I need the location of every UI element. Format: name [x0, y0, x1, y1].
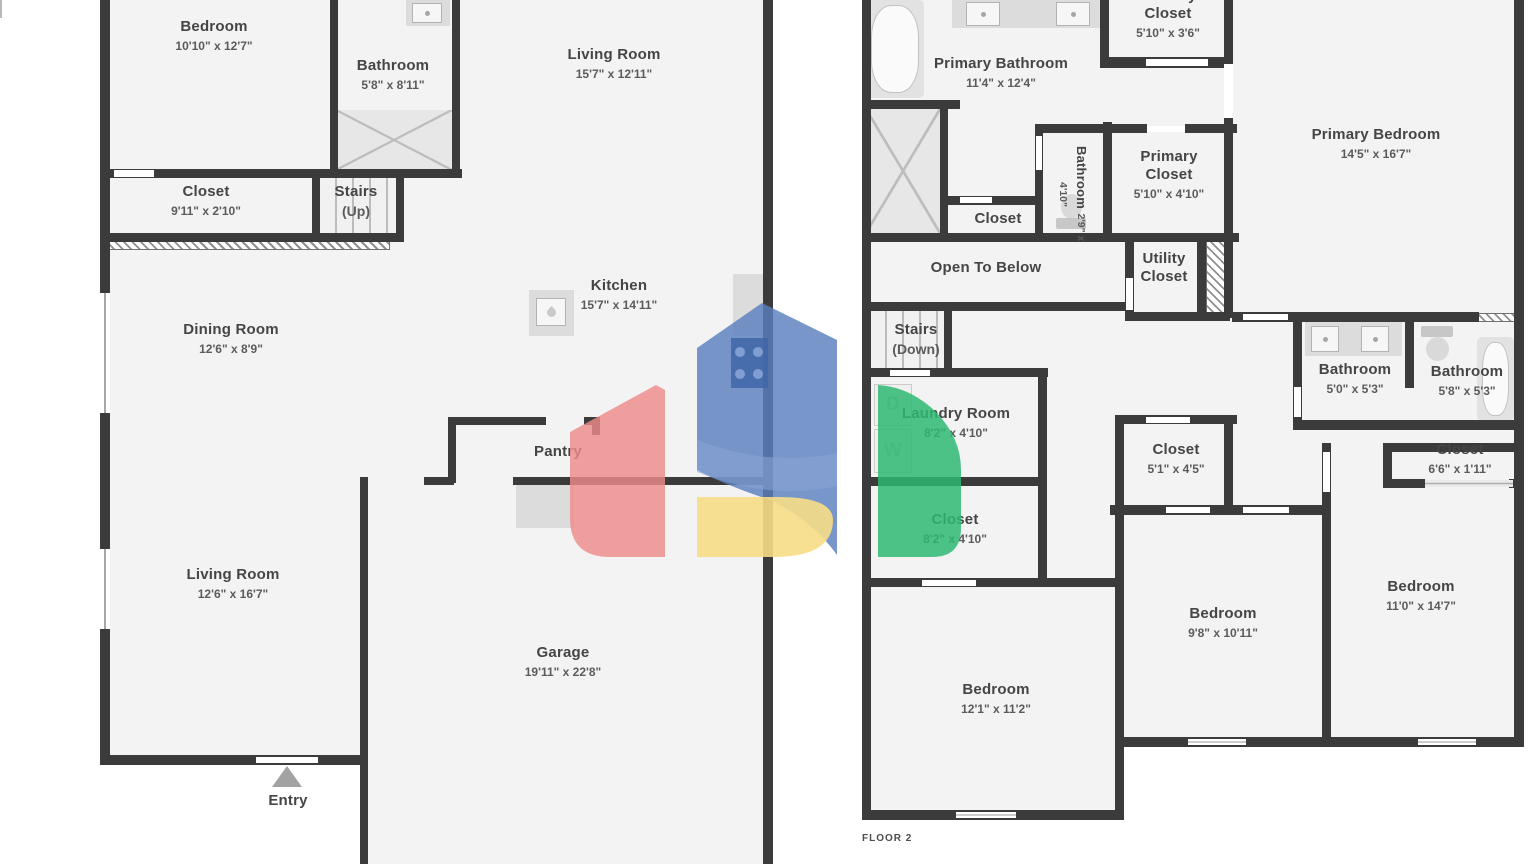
wall-segment — [1224, 118, 1233, 318]
window — [956, 812, 1016, 818]
room-dims: 12'6" x 16'7" — [186, 587, 279, 602]
room-label-entry: Entry — [268, 792, 307, 810]
sink-icon — [1311, 326, 1339, 352]
room-label-stairs-up: Stairs (Up) — [335, 183, 378, 219]
wall-segment — [1293, 420, 1523, 430]
room-name: Bedroom — [1386, 578, 1456, 596]
room-dims: (Up) — [335, 204, 378, 219]
stove-icon — [0, 0, 2, 18]
room-label-closet: Closet 9'11" x 2'10" — [171, 183, 241, 219]
room-label-bathroom-left: Bathroom 5'0" x 5'3" — [1319, 361, 1391, 397]
sliding-door — [1425, 480, 1513, 487]
window — [1188, 739, 1246, 745]
wall-segment — [1514, 0, 1524, 747]
room-name: Closet — [1428, 441, 1491, 459]
room-name: Pantry — [534, 443, 582, 461]
room-dims: 12'6" x 8'9" — [183, 342, 279, 357]
wall-segment — [448, 417, 456, 483]
refrigerator-icon — [733, 274, 765, 336]
wall-segment — [763, 0, 773, 864]
wall-segment — [100, 169, 462, 178]
room-dims: (Down) — [892, 342, 939, 357]
room-name: Bathroom — [357, 57, 429, 75]
room-label-bedroom: Bedroom 10'10" x 12'7" — [175, 18, 252, 54]
wall-segment — [1038, 477, 1047, 587]
door-opening — [1224, 64, 1233, 118]
wall-segment — [513, 477, 771, 485]
room-dims: 11'4" x 12'4" — [934, 76, 1068, 91]
room-name: Closet — [974, 210, 1021, 228]
room-dims: 15'7" x 12'11" — [567, 67, 660, 82]
door-opening — [1147, 126, 1185, 132]
door-opening — [1243, 507, 1289, 513]
room-label-primary-bedroom: Primary Bedroom 14'5" x 16'7" — [1312, 126, 1441, 162]
room-dims: 8'2" x 4'10" — [902, 426, 1010, 441]
room-name: Open To Below — [931, 259, 1042, 277]
room-label-bathroom-small: Bathroom 2'9" x 4'10" — [1054, 146, 1090, 242]
room-label-bedroom-right: Bedroom 11'0" x 14'7" — [1386, 578, 1456, 614]
room-name: Bathroom — [1319, 361, 1391, 379]
door-opening — [1323, 452, 1330, 492]
wall-segment — [862, 233, 1239, 242]
door-opening — [1166, 507, 1210, 513]
room-dims: 8'2" x 4'10" — [923, 532, 987, 547]
room-label-primary-bathroom: Primary Bathroom 11'4" x 12'4" — [934, 55, 1068, 91]
room-dims: 11'0" x 14'7" — [1386, 599, 1456, 614]
wall-segment — [1110, 505, 1328, 515]
wall-segment — [944, 311, 952, 373]
room-name: Garage — [525, 644, 601, 662]
room-dims: 5'0" x 5'3" — [1319, 382, 1391, 397]
room-label-primary-closet: Primary Closet 5'10" x 4'10" — [1123, 148, 1215, 202]
wall-segment — [862, 302, 1134, 311]
room-dims: 5'10" x 4'10" — [1123, 187, 1215, 202]
room-name: Stairs — [892, 321, 939, 339]
wall-segment — [100, 755, 368, 765]
door-opening — [1146, 59, 1208, 66]
room-name: Closet — [923, 511, 987, 529]
wall-segment — [1197, 242, 1206, 320]
wall-segment — [862, 0, 871, 820]
wall-segment — [866, 578, 1124, 587]
room-label-closet-small: Closet 5'1" x 4'5" — [1147, 441, 1204, 477]
wall-segment — [1103, 124, 1147, 133]
door-opening — [256, 757, 318, 763]
wall-segment — [100, 233, 404, 242]
floor-area — [366, 745, 765, 864]
room-dims: 15'7" x 14'11" — [581, 298, 657, 313]
sink-icon — [1056, 2, 1090, 26]
room-name: Stairs — [335, 183, 378, 201]
room-name: Primary Bathroom — [934, 55, 1068, 73]
room-label-bedroom-mid: Bedroom 9'8" x 10'11" — [1188, 605, 1258, 641]
room-name: Bathroom — [1074, 146, 1089, 209]
room-name: Entry — [268, 792, 307, 810]
wall-segment — [452, 0, 460, 177]
room-name: Living Room — [186, 566, 279, 584]
shower-icon — [336, 110, 452, 170]
room-name: Bedroom — [175, 18, 252, 36]
room-label-pantry: Pantry — [534, 443, 582, 461]
room-label-bathroom: Bathroom 5'8" x 8'11" — [357, 57, 429, 93]
room-name: Primary Closet — [1122, 0, 1214, 23]
room-dims: 6'6" x 1'11" — [1428, 462, 1491, 477]
window — [100, 293, 110, 413]
sink-icon — [412, 3, 442, 23]
room-label-closet-hall: Closet — [974, 210, 1021, 228]
wall-segment — [396, 172, 404, 238]
entry-arrow-icon — [272, 766, 302, 787]
wall-segment — [1405, 322, 1414, 388]
room-label-kitchen: Kitchen 15'7" x 14'11" — [581, 277, 657, 313]
floor-2-label: FLOOR 2 — [862, 833, 912, 844]
door-opening — [960, 197, 992, 203]
room-name: Primary Bedroom — [1312, 126, 1441, 144]
window — [1418, 739, 1476, 745]
room-name: Bathroom — [1431, 363, 1503, 381]
room-name: Bedroom — [961, 681, 1031, 699]
room-label-garage: Garage 19'11" x 22'8" — [525, 644, 601, 680]
wall-segment — [1035, 124, 1107, 133]
door-opening — [1243, 314, 1288, 320]
wall-segment — [312, 172, 320, 238]
window — [100, 549, 110, 629]
room-dims: 12'1" x 11'2" — [961, 702, 1031, 717]
wall-segment — [1100, 0, 1109, 60]
wall-segment — [1383, 479, 1425, 488]
wall-segment — [862, 100, 960, 109]
toilet-icon — [1421, 326, 1453, 337]
room-name: Kitchen — [581, 277, 657, 295]
wall-segment — [448, 417, 546, 425]
room-label-bedroom-bottom: Bedroom 12'1" x 11'2" — [961, 681, 1031, 717]
room-name: Closet — [171, 183, 241, 201]
room-dims: 5'8" x 8'11" — [357, 78, 429, 93]
room-label-bathroom-right: Bathroom 5'8" x 5'3" — [1431, 363, 1503, 399]
room-name: Primary Closet — [1123, 148, 1215, 184]
wall-segment — [940, 109, 948, 235]
door-panel — [516, 482, 574, 528]
room-label-dining-room: Dining Room 12'6" x 8'9" — [183, 321, 279, 357]
room-dims: 5'1" x 4'5" — [1147, 462, 1204, 477]
room-name: Laundry Room — [902, 405, 1010, 423]
toilet-icon — [1426, 337, 1449, 361]
shower-icon — [866, 109, 940, 233]
room-label-open-to-below: Open To Below — [931, 259, 1042, 277]
door-opening — [114, 170, 154, 177]
room-label-primary-closet-top: Primary Closet 5'10" x 3'6" — [1122, 0, 1214, 41]
wall-segment — [1224, 0, 1233, 64]
wall-segment — [424, 477, 454, 485]
sink-icon — [966, 2, 1000, 26]
room-dims: 5'10" x 3'6" — [1122, 26, 1214, 41]
room-name: Dining Room — [183, 321, 279, 339]
kitchen-sink-icon — [536, 298, 566, 326]
room-label-laundry-room: Laundry Room 8'2" x 4'10" — [902, 405, 1010, 441]
door-opening — [1036, 136, 1042, 170]
room-name: Closet — [1147, 441, 1204, 459]
wall-segment — [866, 477, 1042, 486]
wall-segment — [1103, 122, 1112, 235]
wall-segment — [360, 477, 368, 864]
wall-segment — [1125, 312, 1230, 321]
room-label-utility-closet: Utility Closet — [1131, 250, 1197, 286]
room-name: Bedroom — [1188, 605, 1258, 623]
wall-segment — [1038, 368, 1047, 480]
room-name: Utility Closet — [1131, 250, 1197, 286]
wall-segment — [1115, 420, 1124, 820]
room-dims: 14'5" x 16'7" — [1312, 147, 1441, 162]
door-opening — [1294, 387, 1301, 417]
room-label-closet-mid: Closet 8'2" x 4'10" — [923, 511, 987, 547]
floorplan-canvas: D W — [0, 0, 1536, 864]
wall-segment — [592, 417, 600, 435]
room-label-living-room-top: Living Room 15'7" x 12'11" — [567, 46, 660, 82]
room-dims: 10'10" x 12'7" — [175, 39, 252, 54]
sink-icon — [1361, 326, 1389, 352]
room-label-living-room: Living Room 12'6" x 16'7" — [186, 566, 279, 602]
bathtub-icon — [866, 0, 924, 98]
door-opening — [1146, 417, 1190, 423]
wall-segment — [330, 0, 338, 177]
room-dims: 5'8" x 5'3" — [1431, 384, 1503, 399]
room-dims: 9'8" x 10'11" — [1188, 626, 1258, 641]
room-label-stairs-down: Stairs (Down) — [892, 321, 939, 357]
room-name: Living Room — [567, 46, 660, 64]
room-dims: 9'11" x 2'10" — [171, 204, 241, 219]
door-opening — [922, 580, 976, 586]
wall-segment — [1224, 415, 1233, 515]
door-opening — [890, 370, 930, 376]
room-dims: 19'11" x 22'8" — [525, 665, 601, 680]
room-label-closet-narrow: Closet 6'6" x 1'11" — [1428, 441, 1491, 477]
